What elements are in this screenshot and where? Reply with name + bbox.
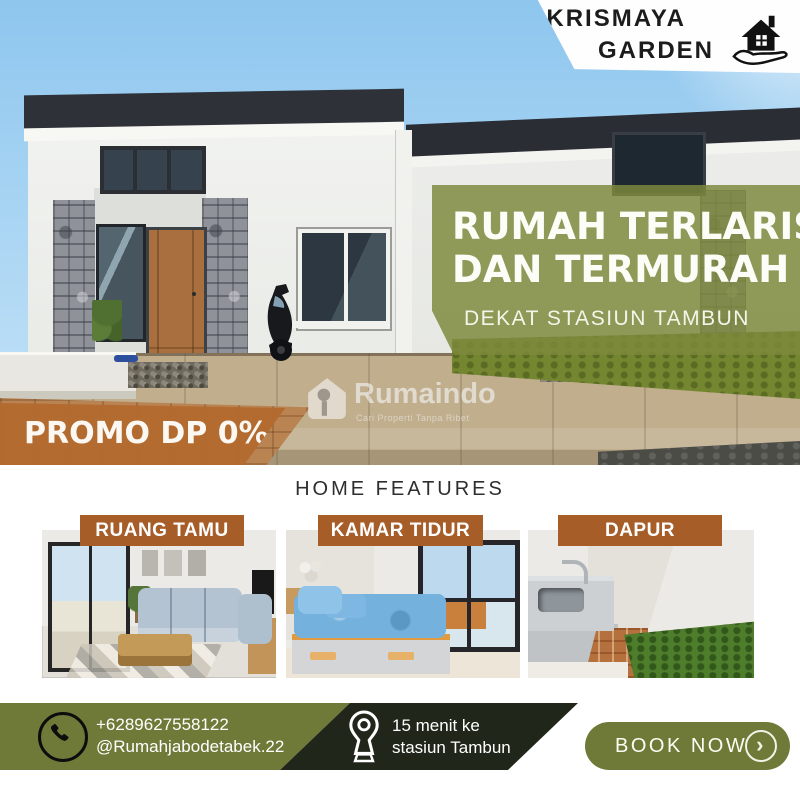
instagram-handle[interactable]: @Rumahjabodetabek.22 (96, 736, 284, 758)
house-in-hand-icon (728, 8, 794, 68)
promo-badge: PROMO DP 0% (0, 403, 294, 465)
book-now-label: BOOK NOW (615, 735, 747, 757)
headline-line1: RUMAH TERLARIS (452, 205, 800, 248)
watermark-name: Rumaindo (354, 378, 496, 411)
feature-photo-bedroom (286, 530, 520, 678)
pillows (298, 586, 342, 614)
rumaindo-house-icon (306, 376, 348, 420)
transom-window (100, 146, 206, 194)
contact-block: +6289627558122 @Rumahjabodetabek.22 (96, 714, 284, 758)
door-knob (192, 292, 196, 296)
headline-line2: DAN TERMURAH (452, 248, 800, 291)
watermark-tagline: Cari Properti Tanpa Ribet (356, 413, 469, 423)
card-label-dapur: DAPUR (558, 515, 722, 546)
brand-name-line2: GARDEN (598, 37, 714, 65)
front-door (146, 227, 207, 362)
chevron-right-icon[interactable]: › (745, 730, 777, 762)
coffee-table (118, 634, 192, 666)
side-window (298, 229, 390, 329)
gravel-strip (128, 362, 208, 388)
feature-photo-living-room (42, 530, 276, 678)
motorcycle (246, 282, 304, 364)
brand-banner: KRISMAYA GARDEN (518, 0, 800, 76)
flyer: KRISMAYA GARDEN RUMAH TERLARIS DAN TERMU… (0, 0, 800, 800)
distance-line1: 15 menit ke (392, 715, 511, 737)
distance-line2: stasiun Tambun (392, 737, 511, 759)
subheadline: DEKAT STASIUN TAMBUN (464, 307, 750, 331)
wall-frames (142, 550, 206, 576)
headline-overlay: RUMAH TERLARIS DAN TERMURAH DEKAT STASIU… (432, 185, 800, 355)
book-now-button[interactable]: BOOK NOW › (585, 722, 790, 770)
plant (92, 300, 122, 346)
distance-block: 15 menit ke stasiun Tambun (392, 715, 511, 759)
phone-number[interactable]: +6289627558122 (96, 714, 284, 736)
faucet (562, 560, 588, 584)
house-photo: KRISMAYA GARDEN RUMAH TERLARIS DAN TERMU… (0, 0, 800, 465)
stone-pillar-left (53, 200, 95, 362)
features-heading: HOME FEATURES (0, 478, 800, 501)
headline: RUMAH TERLARIS DAN TERMURAH (452, 205, 800, 291)
promo-text: PROMO DP 0% (24, 416, 269, 451)
shoes (114, 355, 138, 362)
phone-icon (38, 712, 88, 762)
footer-bar: +6289627558122 @Rumahjabodetabek.22 15 m… (0, 703, 800, 770)
location-pin-icon (348, 710, 380, 763)
stone-pillar-right (202, 198, 248, 362)
card-label-ruang-tamu: RUANG TAMU (80, 515, 244, 546)
brand-name-line1: KRISMAYA (546, 5, 686, 33)
window-sill (292, 321, 388, 328)
armchair (238, 594, 272, 644)
bed-frame (292, 634, 450, 674)
kitchen-floor (528, 662, 628, 678)
feature-photo-kitchen (528, 530, 754, 678)
rumaindo-watermark: Rumaindo Cari Properti Tanpa Ribet (306, 376, 526, 428)
card-label-kamar-tidur: KAMAR TIDUR (318, 515, 483, 546)
sink-basin (538, 588, 584, 612)
